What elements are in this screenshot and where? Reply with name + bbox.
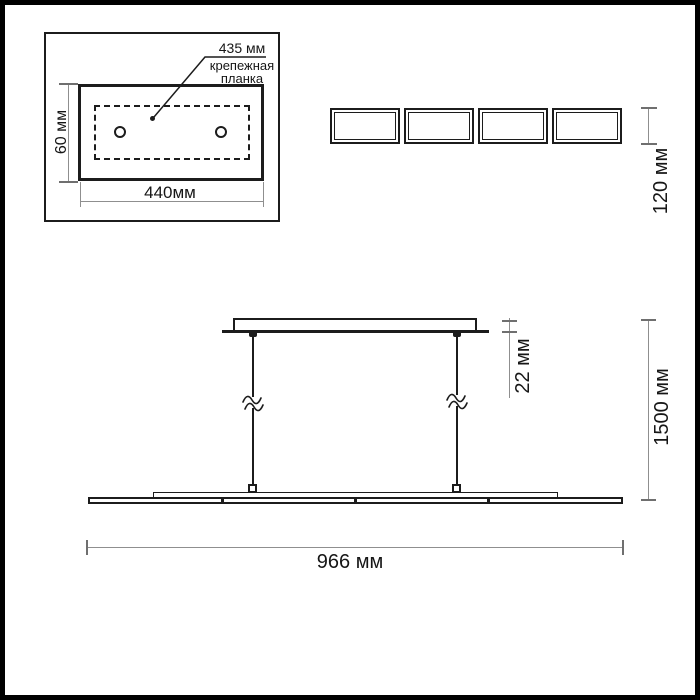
dim-966-label: 966 мм [280,552,420,572]
dim-966-line [87,547,623,548]
bar-segment-divider [487,497,490,504]
bar-segment-divider [354,497,357,504]
dim-966-tick-left [86,540,88,555]
canopy-baseplate-line [222,330,489,333]
wire-grip-left [249,333,257,337]
dim-22-tick-bottom [502,331,517,333]
technical-drawing-page: { "inset": { "callout": { "dimension": "… [0,0,700,700]
side-view-fixture: 22 мм 1500 мм 966 мм [0,0,700,700]
dim-22-line [509,318,510,398]
bar-segment-divider [221,497,224,504]
dim-1500-label: 1500 мм [652,368,672,446]
dim-22-label: 22 мм [513,338,533,393]
suspension-wire-left [252,333,254,484]
suspension-wire-right [456,333,458,484]
dim-1500-tick-bottom [641,499,656,501]
dim-1500-line [648,320,649,500]
light-bar [88,497,623,504]
dim-22-tick-top [502,320,517,322]
dim-1500-tick-top [641,319,656,321]
dim-966-tick-right [622,540,624,555]
wire-grip-right [453,333,461,337]
